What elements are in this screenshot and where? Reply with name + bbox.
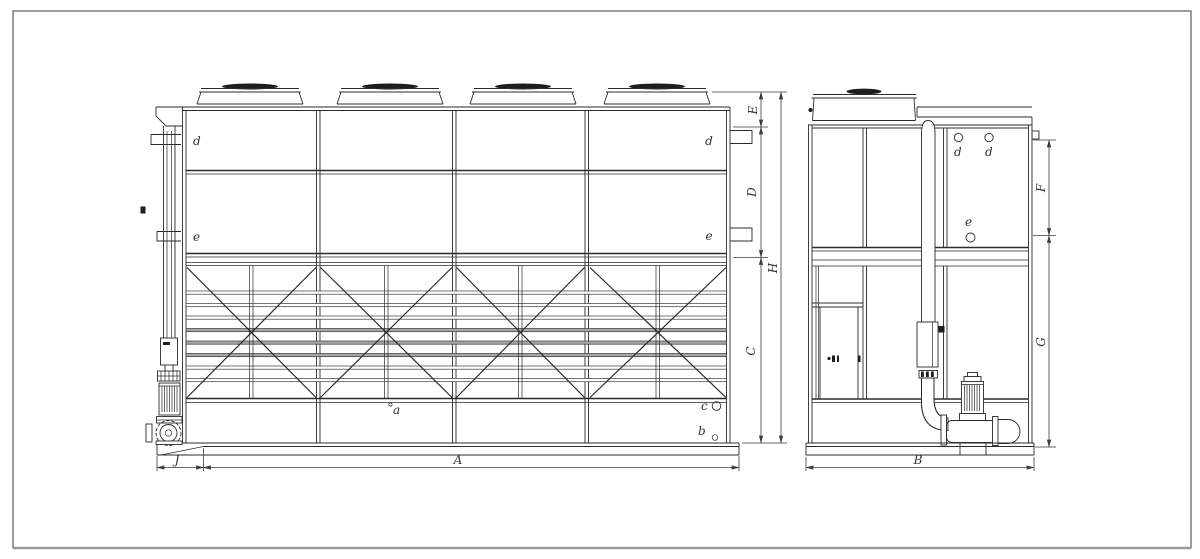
casing-frame-front [182,107,730,443]
part-labels-front: d e d e a c b [193,134,721,440]
part-label-d-left: d [193,134,201,148]
part-label-b: b [698,424,706,438]
pump-front [146,338,182,446]
fan-unit [337,84,443,108]
casing-frame-side [809,117,1033,443]
part-label-d-right: d [705,134,713,148]
dim-label-E: E [746,105,760,115]
fan-unit [197,84,303,108]
side-view: d d e [806,89,1039,455]
technical-drawing: d e d e a c b E D C H J A [0,0,1200,559]
x-bracing [187,268,726,398]
fan-units-front [197,84,710,108]
door-handle-marks [827,356,860,363]
dimensions-front: E D C H J A [157,92,787,471]
dim-label-G: G [1034,337,1048,347]
front-view: d e d e a c b [141,84,753,456]
pipe-stub-e-right [730,228,752,241]
part-labels-side: d d e [954,133,993,242]
dim-label-H: H [766,262,780,274]
fan-unit [604,84,710,108]
dim-label-A: A [453,453,463,467]
fan-unit [470,84,576,108]
drawing-page: d e d e a c b E D C H J A [0,0,1200,559]
dim-label-D: D [745,187,759,198]
fan-unit-side [812,89,918,121]
dim-label-B: B [913,453,923,467]
part-label-c: c [701,399,708,413]
base-skirt-front [157,443,739,455]
part-label-e-left: e [193,230,200,244]
dim-label-C: C [744,346,758,355]
riser-pipe-front [141,107,183,338]
part-label-a: a [393,403,400,417]
pipe-stub-d-right [730,131,752,144]
dim-label-F: F [1034,183,1048,193]
part-label-d2: d [985,145,993,159]
part-label-d1: d [954,145,962,159]
part-label-e: e [965,215,972,229]
part-label-e-right: e [705,229,712,243]
